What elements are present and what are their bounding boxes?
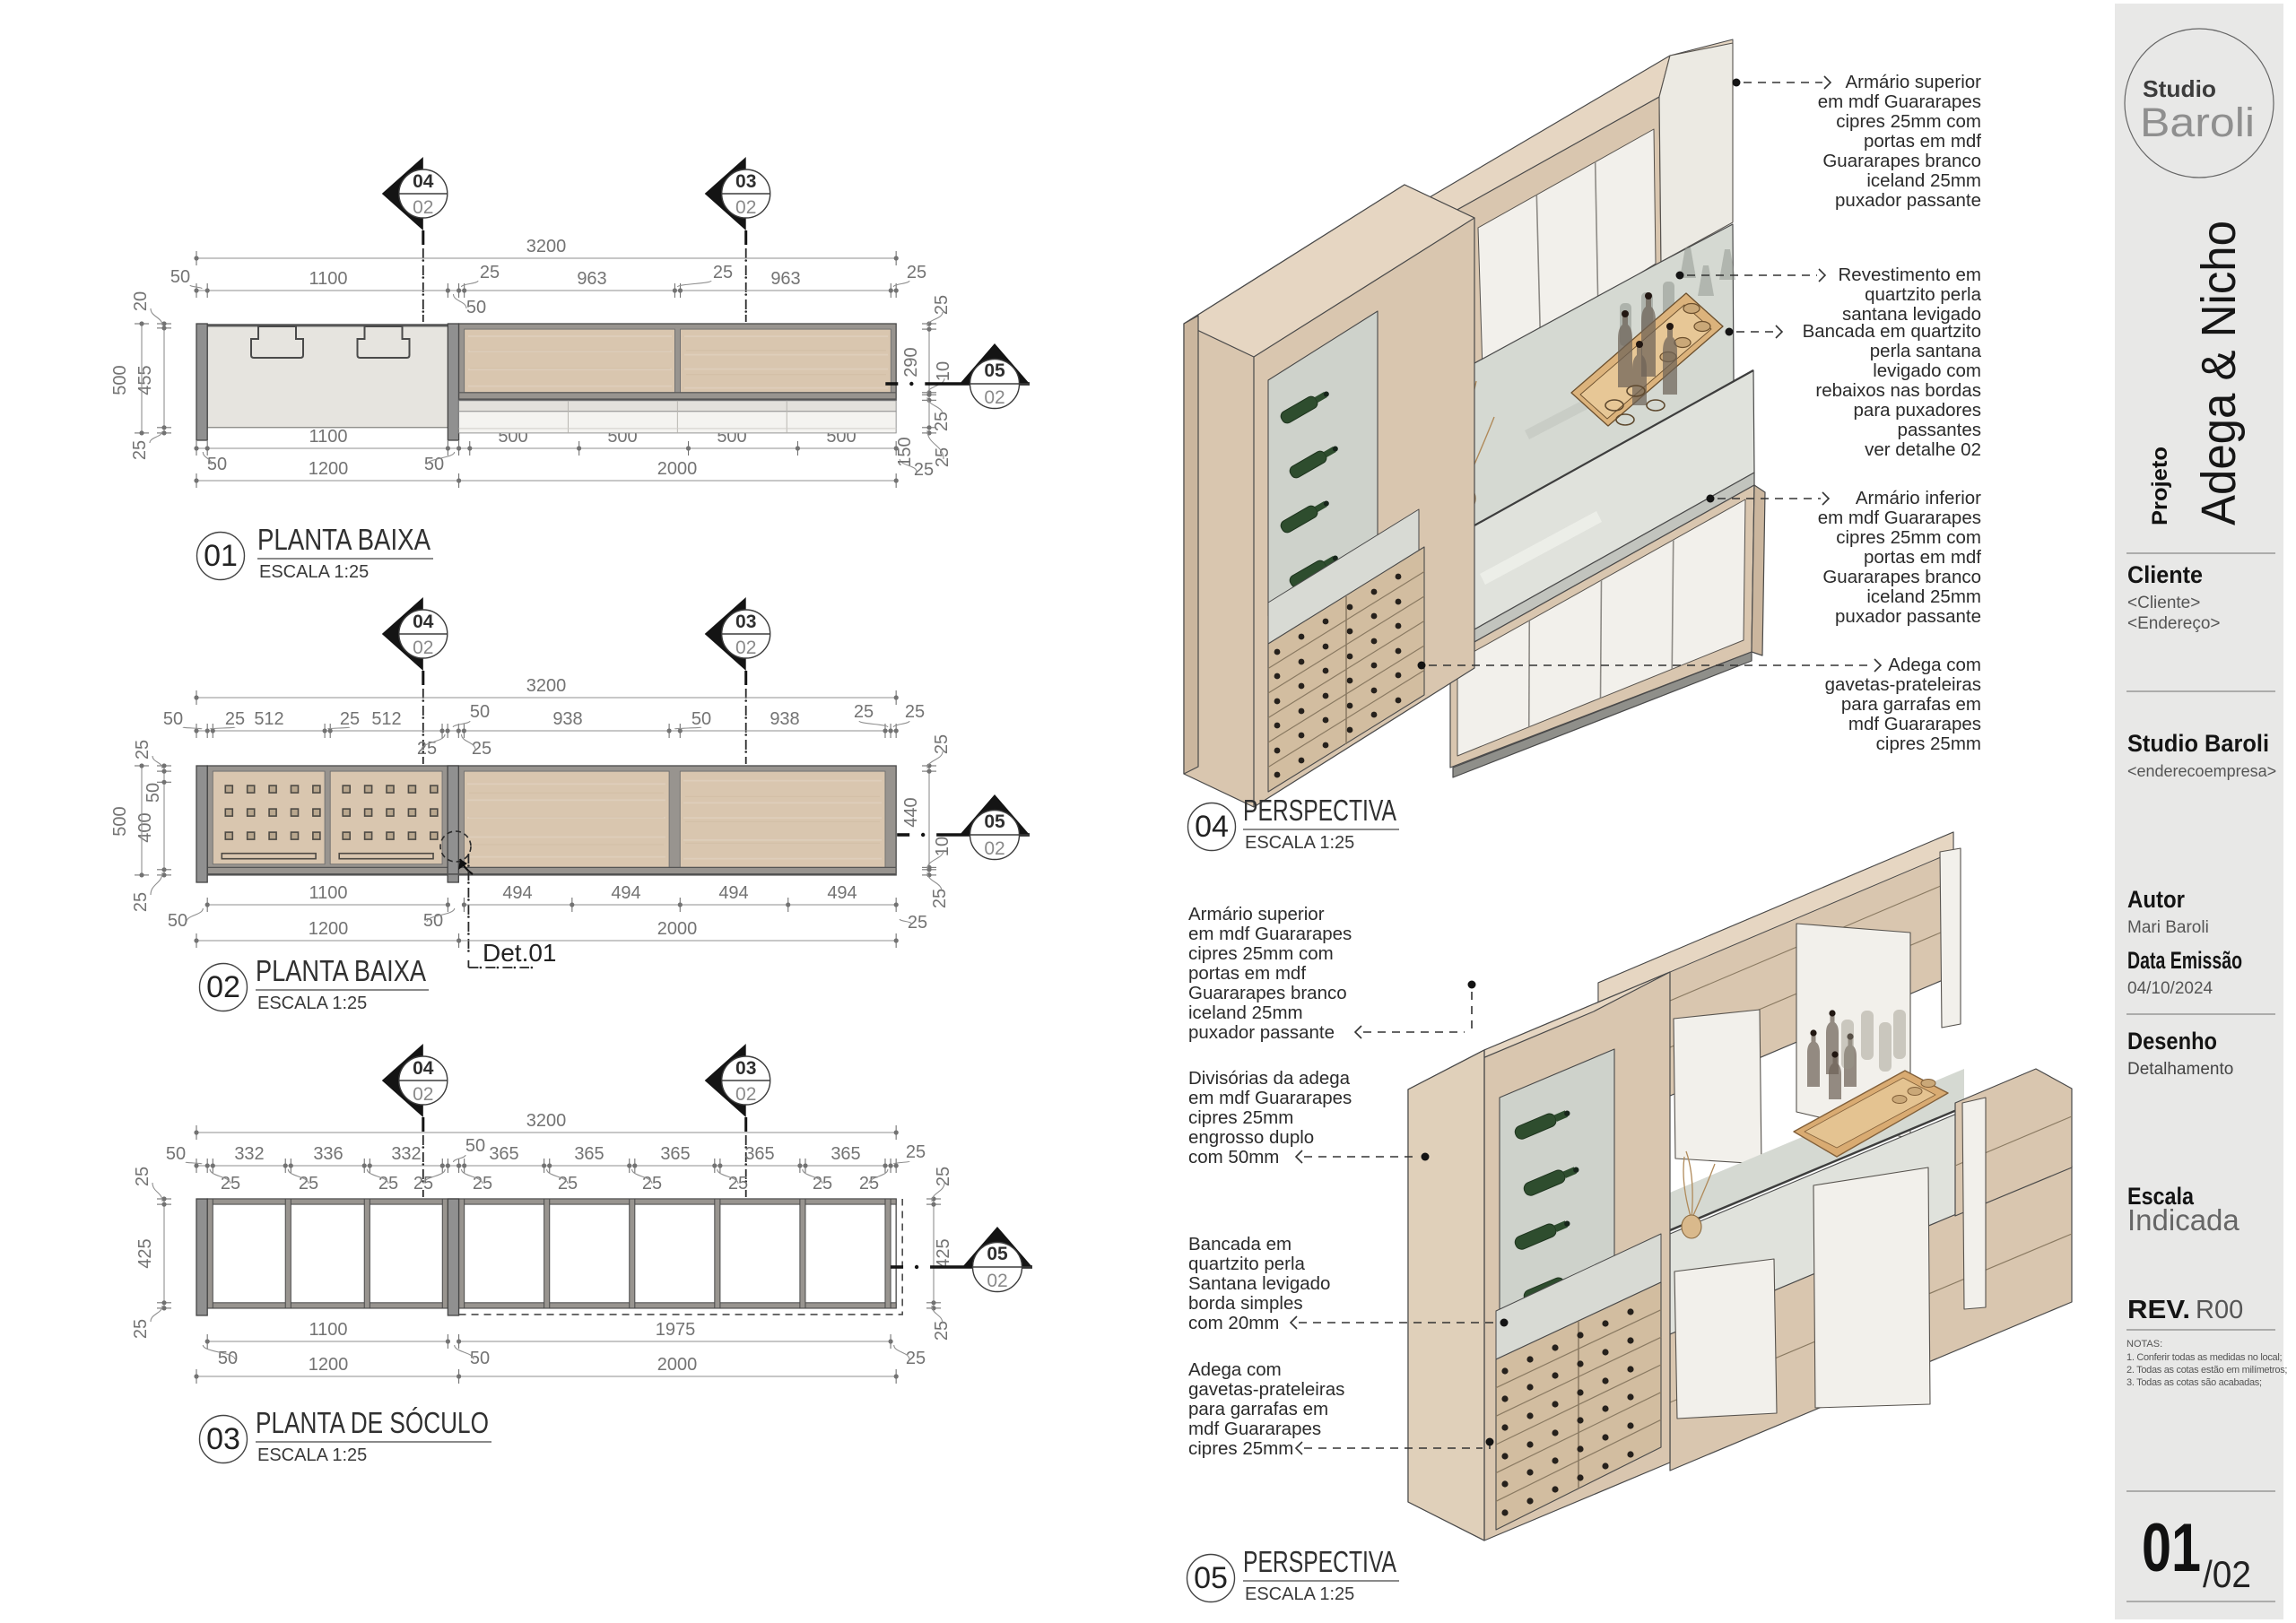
svg-text:Bancada em quartzito: Bancada em quartzito — [1803, 321, 1981, 342]
svg-text:04: 04 — [1195, 810, 1229, 844]
svg-text:Armário superior: Armário superior — [1845, 72, 1981, 92]
svg-text:com 20mm: com 20mm — [1188, 1313, 1279, 1333]
svg-text:25: 25 — [907, 263, 926, 282]
svg-text:455: 455 — [135, 365, 155, 395]
svg-text:Guararapes branco: Guararapes branco — [1822, 567, 1981, 587]
svg-text:50: 50 — [163, 709, 183, 729]
svg-text:puxador passante: puxador passante — [1188, 1022, 1335, 1043]
svg-text:25: 25 — [933, 447, 952, 467]
svg-text:365: 365 — [744, 1144, 774, 1164]
svg-text:02: 02 — [413, 197, 433, 218]
svg-text:25: 25 — [854, 702, 874, 722]
svg-text:150: 150 — [895, 437, 915, 466]
svg-text:cipres 25mm com: cipres 25mm com — [1188, 943, 1334, 964]
svg-text:25: 25 — [932, 1321, 952, 1341]
svg-text:2. Todas as cotas estão em mil: 2. Todas as cotas estão em milímetros; — [2126, 1365, 2287, 1376]
svg-text:<enderecoempresa>: <enderecoempresa> — [2127, 762, 2276, 780]
svg-text:Indicada: Indicada — [2127, 1203, 2239, 1237]
svg-text:quartzito perla: quartzito perla — [1865, 284, 1982, 305]
svg-text:NOTAS:: NOTAS: — [2126, 1339, 2162, 1350]
svg-text:Guararapes branco: Guararapes branco — [1822, 151, 1981, 171]
svg-text:02: 02 — [735, 638, 756, 658]
svg-text:puxador passante: puxador passante — [1835, 190, 1981, 211]
svg-text:para garrafas em: para garrafas em — [1841, 694, 1981, 715]
svg-text:25: 25 — [905, 702, 925, 722]
svg-text:rebaixos nas bordas: rebaixos nas bordas — [1815, 380, 1981, 401]
svg-text:25: 25 — [131, 1319, 151, 1339]
svg-text:425: 425 — [135, 1238, 155, 1268]
svg-text:25: 25 — [906, 1349, 926, 1368]
svg-text:512: 512 — [254, 709, 283, 729]
svg-text:50: 50 — [166, 1144, 186, 1164]
svg-text:Mari Baroli: Mari Baroli — [2127, 918, 2209, 937]
svg-text:365: 365 — [489, 1144, 518, 1164]
svg-text:gavetas-prateleiras: gavetas-prateleiras — [1825, 674, 1981, 695]
svg-text:com 50mm: com 50mm — [1188, 1147, 1279, 1167]
svg-text:Data Emissão: Data Emissão — [2127, 947, 2242, 974]
svg-text:25: 25 — [133, 740, 152, 759]
svg-text:Cliente: Cliente — [2127, 561, 2203, 588]
svg-text:938: 938 — [770, 709, 799, 729]
svg-text:494: 494 — [611, 883, 640, 903]
svg-text:10: 10 — [934, 361, 953, 381]
svg-text:Armário superior: Armário superior — [1188, 904, 1325, 924]
svg-text:cipres 25mm com: cipres 25mm com — [1836, 111, 1981, 132]
svg-text:Studio Baroli: Studio Baroli — [2127, 730, 2269, 757]
svg-text:/02: /02 — [2203, 1553, 2251, 1595]
svg-text:03: 03 — [735, 171, 756, 192]
svg-text:25: 25 — [131, 892, 151, 912]
svg-text:passantes: passantes — [1898, 420, 1981, 440]
svg-text:425: 425 — [934, 1238, 953, 1268]
svg-text:em mdf Guararapes: em mdf Guararapes — [1818, 508, 1981, 528]
svg-text:290: 290 — [901, 347, 921, 377]
svg-text:PLANTA BAIXA: PLANTA BAIXA — [257, 523, 430, 556]
svg-text:25: 25 — [713, 263, 733, 282]
svg-text:512: 512 — [371, 709, 401, 729]
svg-text:ESCALA 1:25: ESCALA 1:25 — [1245, 833, 1354, 853]
svg-text:50: 50 — [168, 911, 187, 931]
svg-text:engrosso duplo: engrosso duplo — [1188, 1127, 1314, 1148]
svg-text:440: 440 — [901, 797, 921, 827]
svg-text:PLANTA BAIXA: PLANTA BAIXA — [256, 954, 426, 987]
svg-text:25: 25 — [932, 734, 952, 754]
svg-text:cipres 25mm com: cipres 25mm com — [1836, 527, 1981, 548]
svg-text:02: 02 — [735, 1084, 756, 1105]
svg-text:Armário inferior: Armário inferior — [1856, 488, 1981, 508]
svg-text:PLANTA DE SÓCULO: PLANTA DE SÓCULO — [256, 1406, 489, 1439]
svg-text:portas em mdf: portas em mdf — [1864, 547, 1981, 568]
svg-text:Guararapes branco: Guararapes branco — [1188, 983, 1347, 1003]
svg-text:3. Todas as cotas são acabadas: 3. Todas as cotas são acabadas; — [2126, 1377, 2262, 1388]
svg-text:25: 25 — [932, 412, 952, 431]
svg-text:500: 500 — [110, 806, 130, 836]
svg-text:para puxadores: para puxadores — [1854, 400, 1981, 421]
svg-text:borda simples: borda simples — [1188, 1293, 1303, 1314]
svg-text:1100: 1100 — [309, 1320, 347, 1340]
svg-text:25: 25 — [914, 460, 934, 480]
svg-text:365: 365 — [660, 1144, 690, 1164]
svg-text:1200: 1200 — [309, 459, 349, 479]
svg-text:336: 336 — [313, 1144, 343, 1164]
svg-text:ver detalhe 02: ver detalhe 02 — [1865, 439, 1981, 460]
svg-text:em mdf Guararapes: em mdf Guararapes — [1188, 1088, 1352, 1108]
svg-text:iceland 25mm: iceland 25mm — [1866, 170, 1981, 191]
svg-text:04: 04 — [413, 1058, 434, 1079]
svg-text:01: 01 — [2142, 1510, 2201, 1586]
svg-text:50: 50 — [207, 455, 227, 474]
svg-text:portas em mdf: portas em mdf — [1188, 963, 1306, 984]
svg-text:ESCALA 1:25: ESCALA 1:25 — [257, 994, 367, 1013]
svg-text:04: 04 — [413, 612, 434, 632]
svg-text:05: 05 — [984, 360, 1005, 381]
svg-text:cipres 25mm: cipres 25mm — [1188, 1438, 1293, 1459]
svg-text:20: 20 — [131, 291, 151, 311]
svg-text:Projeto: Projeto — [2148, 447, 2172, 525]
svg-text:25: 25 — [472, 739, 491, 759]
svg-text:50: 50 — [143, 783, 163, 803]
svg-text:mdf Guararapes: mdf Guararapes — [1188, 1419, 1321, 1439]
svg-text:em mdf Guararapes: em mdf Guararapes — [1188, 924, 1352, 944]
svg-text:400: 400 — [135, 812, 155, 842]
svg-text:50: 50 — [466, 298, 486, 317]
svg-text:REV.: REV. — [2127, 1296, 2190, 1324]
svg-text:2000: 2000 — [657, 459, 698, 479]
svg-text:<Endereço>: <Endereço> — [2127, 614, 2221, 633]
svg-text:25: 25 — [225, 709, 245, 729]
svg-text:Divisórias da adega: Divisórias da adega — [1188, 1068, 1351, 1089]
svg-text:03: 03 — [206, 1422, 240, 1456]
svg-text:04: 04 — [413, 171, 434, 192]
svg-text:Adega & Nicho: Adega & Nicho — [2192, 221, 2246, 525]
svg-text:50: 50 — [691, 709, 711, 729]
svg-text:3200: 3200 — [526, 237, 567, 256]
svg-text:25: 25 — [130, 440, 150, 460]
svg-text:1975: 1975 — [656, 1320, 696, 1340]
svg-text:332: 332 — [391, 1144, 421, 1164]
svg-text:02: 02 — [984, 838, 1004, 859]
svg-text:02: 02 — [984, 387, 1004, 408]
svg-text:03: 03 — [735, 612, 756, 632]
svg-text:puxador passante: puxador passante — [1835, 606, 1981, 627]
svg-text:25: 25 — [340, 709, 360, 729]
svg-text:Adega com: Adega com — [1888, 655, 1981, 675]
svg-text:25: 25 — [480, 263, 500, 282]
svg-text:3200: 3200 — [526, 676, 567, 696]
svg-text:25: 25 — [906, 1142, 926, 1162]
svg-text:cipres 25mm: cipres 25mm — [1876, 733, 1981, 754]
svg-text:25: 25 — [930, 889, 950, 908]
svg-text:1100: 1100 — [309, 269, 347, 289]
svg-text:perla santana: perla santana — [1870, 341, 1982, 361]
svg-text:R00: R00 — [2196, 1296, 2243, 1324]
svg-text:05: 05 — [984, 811, 1005, 832]
svg-text:963: 963 — [577, 269, 606, 289]
svg-text:Detalhamento: Detalhamento — [2127, 1060, 2233, 1079]
svg-text:02: 02 — [413, 638, 433, 658]
svg-text:Desenho: Desenho — [2127, 1028, 2217, 1055]
svg-text:2000: 2000 — [657, 919, 698, 939]
svg-text:1100: 1100 — [309, 883, 347, 903]
svg-text:iceland 25mm: iceland 25mm — [1866, 586, 1981, 607]
svg-text:mdf Guararapes: mdf Guararapes — [1848, 714, 1981, 734]
svg-text:03: 03 — [735, 1058, 756, 1079]
svg-text:Revestimento em: Revestimento em — [1838, 265, 1981, 285]
svg-text:em mdf Guararapes: em mdf Guararapes — [1818, 91, 1981, 112]
svg-text:PERSPECTIVA: PERSPECTIVA — [1243, 794, 1396, 827]
svg-text:494: 494 — [827, 883, 857, 903]
svg-text:ESCALA 1:25: ESCALA 1:25 — [257, 1445, 367, 1465]
svg-text:01: 01 — [204, 539, 238, 573]
svg-text:ESCALA 1:25: ESCALA 1:25 — [259, 562, 369, 582]
svg-text:50: 50 — [470, 702, 490, 722]
svg-text:02: 02 — [206, 970, 240, 1004]
svg-text:Bancada em: Bancada em — [1188, 1234, 1291, 1254]
svg-text:50: 50 — [170, 267, 190, 287]
svg-text:Baroli: Baroli — [2140, 100, 2255, 145]
svg-text:Santana levigado: Santana levigado — [1188, 1273, 1330, 1294]
svg-text:494: 494 — [718, 883, 748, 903]
svg-text:quartzito perla: quartzito perla — [1188, 1254, 1306, 1274]
svg-text:levigado com: levigado com — [1873, 360, 1981, 381]
svg-text:05: 05 — [1194, 1561, 1228, 1595]
svg-text:<Cliente>: <Cliente> — [2127, 594, 2200, 612]
svg-text:04/10/2024: 04/10/2024 — [2127, 979, 2213, 998]
svg-text:1200: 1200 — [309, 1355, 349, 1375]
svg-text:3200: 3200 — [526, 1111, 567, 1131]
svg-text:Studio: Studio — [2143, 75, 2216, 102]
svg-text:365: 365 — [574, 1144, 604, 1164]
svg-text:963: 963 — [770, 269, 800, 289]
svg-text:1. Conferir todas as medidas n: 1. Conferir todas as medidas no local; — [2126, 1352, 2282, 1363]
svg-text:ESCALA 1:25: ESCALA 1:25 — [1245, 1584, 1354, 1604]
svg-text:25: 25 — [932, 295, 952, 315]
svg-text:25: 25 — [934, 1167, 953, 1186]
svg-text:25: 25 — [133, 1167, 152, 1186]
svg-text:02: 02 — [735, 197, 756, 218]
svg-text:gavetas-prateleiras: gavetas-prateleiras — [1188, 1379, 1344, 1400]
svg-text:1100: 1100 — [309, 427, 347, 447]
svg-text:cipres 25mm: cipres 25mm — [1188, 1107, 1293, 1128]
svg-text:50: 50 — [470, 1349, 490, 1368]
svg-text:para garrafas em: para garrafas em — [1188, 1399, 1328, 1419]
svg-text:332: 332 — [234, 1144, 264, 1164]
svg-text:Det.01: Det.01 — [483, 939, 557, 967]
svg-text:50: 50 — [423, 911, 443, 931]
svg-text:Autor: Autor — [2127, 886, 2185, 913]
svg-text:portas em mdf: portas em mdf — [1864, 131, 1981, 152]
svg-text:05: 05 — [987, 1244, 1008, 1264]
svg-text:02: 02 — [987, 1271, 1007, 1291]
svg-text:Adega com: Adega com — [1188, 1359, 1282, 1380]
svg-text:494: 494 — [502, 883, 532, 903]
svg-text:1200: 1200 — [309, 919, 349, 939]
svg-text:938: 938 — [552, 709, 582, 729]
svg-text:365: 365 — [831, 1144, 860, 1164]
svg-text:500: 500 — [110, 365, 130, 395]
svg-text:02: 02 — [413, 1084, 433, 1105]
svg-text:iceland 25mm: iceland 25mm — [1188, 1002, 1303, 1023]
svg-text:PERSPECTIVA: PERSPECTIVA — [1243, 1545, 1396, 1578]
svg-text:50: 50 — [465, 1136, 485, 1156]
svg-text:2000: 2000 — [657, 1355, 698, 1375]
